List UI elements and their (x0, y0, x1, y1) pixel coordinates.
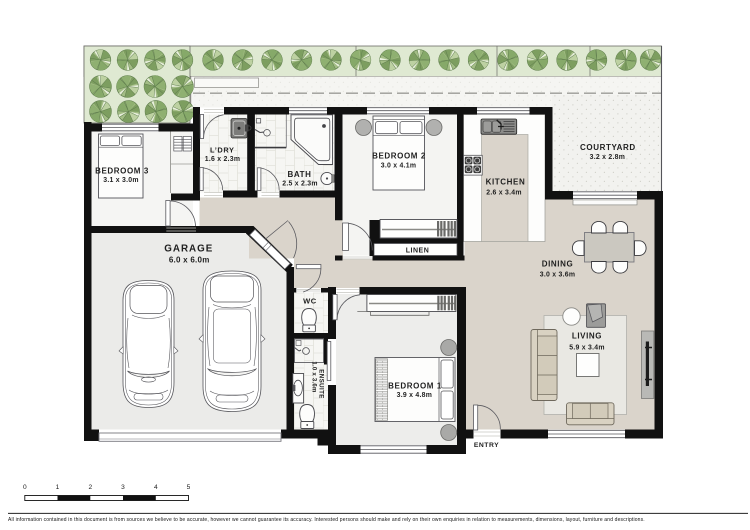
svg-text:L’DRY: L’DRY (210, 145, 235, 154)
svg-text:KITCHEN: KITCHEN (486, 177, 526, 186)
svg-text:LINEN: LINEN (406, 247, 430, 254)
svg-text:5.9 x 3.4m: 5.9 x 3.4m (569, 344, 604, 351)
svg-text:2: 2 (88, 484, 92, 491)
svg-text:BEDROOM 1: BEDROOM 1 (388, 381, 442, 390)
svg-text:6.0 x 6.0m: 6.0 x 6.0m (169, 255, 210, 264)
svg-text:3.9 x 4.8m: 3.9 x 4.8m (397, 392, 432, 399)
svg-text:COURTYARD: COURTYARD (580, 143, 636, 152)
svg-text:2.6 x 3.4m: 2.6 x 3.4m (486, 189, 521, 196)
svg-text:1.6 x 2.3m: 1.6 x 2.3m (205, 156, 240, 163)
svg-text:5: 5 (187, 484, 191, 491)
svg-text:LIVING: LIVING (572, 331, 602, 340)
svg-text:ENTRY: ENTRY (474, 442, 499, 449)
svg-text:BEDROOM 2: BEDROOM 2 (372, 151, 426, 160)
svg-text:GARAGE: GARAGE (164, 244, 213, 255)
svg-text:2.5 x 2.3m: 2.5 x 2.3m (282, 180, 317, 187)
svg-text:DINING: DINING (542, 259, 574, 268)
svg-text:0: 0 (23, 484, 27, 491)
svg-text:BATH: BATH (287, 170, 311, 179)
svg-text:WC: WC (303, 296, 317, 305)
svg-text:BEDROOM 3: BEDROOM 3 (95, 166, 149, 175)
svg-text:ENSUITE: ENSUITE (318, 369, 325, 399)
svg-text:1.0 x 3.6m: 1.0 x 3.6m (311, 361, 317, 392)
svg-text:3.2 x 2.8m: 3.2 x 2.8m (590, 154, 625, 161)
svg-text:3.1 x 3.0m: 3.1 x 3.0m (103, 177, 138, 184)
svg-text:3.0 x 3.6m: 3.0 x 3.6m (540, 271, 575, 278)
svg-text:3: 3 (121, 484, 125, 491)
svg-text:3.0 x 4.1m: 3.0 x 4.1m (381, 162, 416, 169)
svg-text:1: 1 (56, 484, 60, 491)
svg-text:4: 4 (154, 484, 158, 491)
svg-text:All information contained in t: All information contained in this docume… (8, 517, 645, 523)
